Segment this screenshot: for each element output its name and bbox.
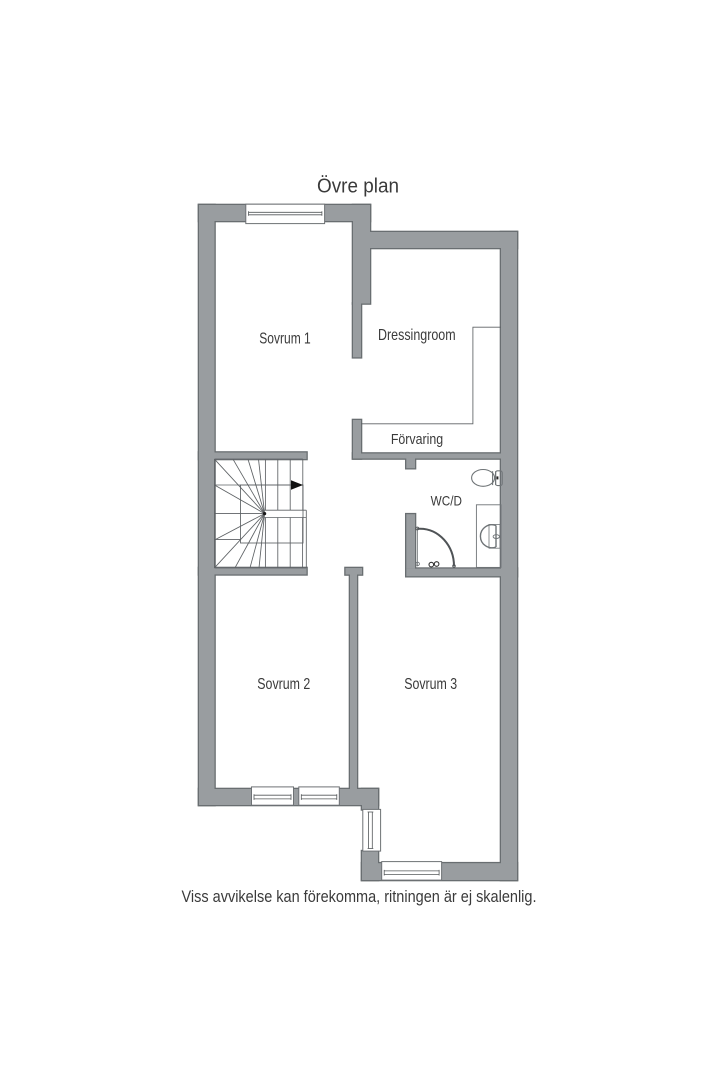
svg-text:WC/D: WC/D	[431, 493, 462, 509]
svg-text:Sovrum 3: Sovrum 3	[404, 676, 457, 693]
svg-text:Viss avvikelse kan förekomma,: Viss avvikelse kan förekomma, ritningen …	[182, 887, 537, 906]
svg-text:Dressingroom: Dressingroom	[378, 327, 456, 344]
svg-text:Förvaring: Förvaring	[391, 431, 443, 448]
svg-text:Övre plan: Övre plan	[317, 176, 399, 198]
svg-text:Sovrum 1: Sovrum 1	[259, 331, 311, 348]
svg-text:Sovrum 2: Sovrum 2	[257, 676, 310, 693]
